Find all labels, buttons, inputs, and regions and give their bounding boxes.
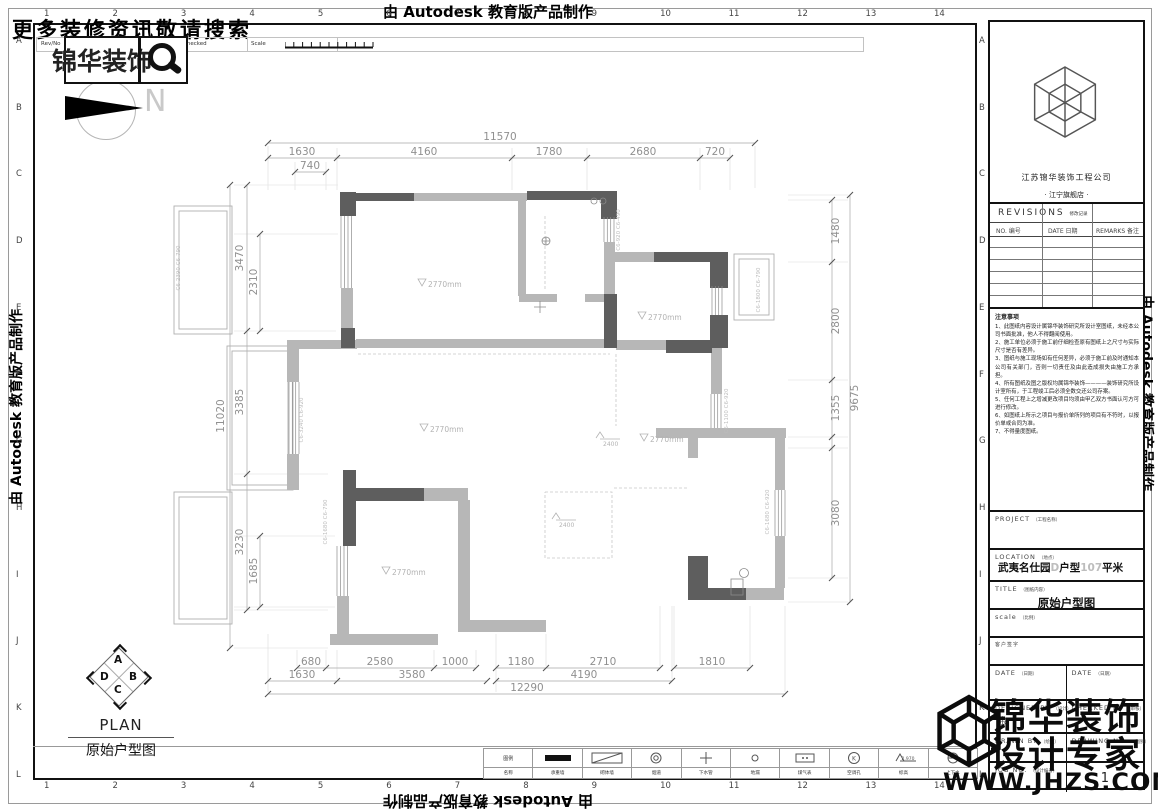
grid-col-top-9: 9 <box>592 9 597 19</box>
grid-col-bottom-9: 9 <box>592 781 597 791</box>
note-4: 4、所有图纸及图之版权均属锦华装饰————装饰研究所设计室所有，于工程竣工后必须… <box>995 380 1139 396</box>
plan-title-en: PLAN <box>68 716 174 734</box>
note-1: 1、此图纸内容设计属锦华装饰研究所设计室图纸，未经本公司书面批准，他人不得翻阅使… <box>995 323 1139 339</box>
grid-row-left-G: G <box>16 436 23 446</box>
grid-col-bottom-3: 3 <box>181 781 186 791</box>
dim-bottom-r1-5: 1810 <box>699 656 726 668</box>
window-label-1: C6-920 C6-490 <box>616 209 622 251</box>
grid-col-bottom-5: 5 <box>318 781 323 791</box>
gas-meter-icon <box>795 752 815 764</box>
dim-bottom-total: 12290 <box>510 682 543 694</box>
project-label-cn: （工程名称） <box>1033 518 1060 523</box>
svg-text:K: K <box>852 756 857 763</box>
dim-bottom-r1-0: 680 <box>301 656 321 668</box>
window-label-0: C6-2390 C6-790 <box>176 245 182 290</box>
grid-col-bottom-2: 2 <box>112 781 117 791</box>
level-mark-1: 2400 <box>559 522 574 529</box>
grid-col-top-4: 4 <box>249 9 254 19</box>
company-name: 江苏锦华装饰工程公司 <box>990 172 1143 183</box>
legend-strip: 图例 名称 承重墙 砌体墙 烟道 下水管 地漏 煤气表 K 空调孔 <box>483 748 978 779</box>
frame-right <box>975 23 977 780</box>
dim-left-mid-1: 3385 <box>234 389 246 416</box>
grid-col-bottom-1: 1 <box>44 781 49 791</box>
autodesk-banner-bottom: 由 Autodesk 教育版产品制作 <box>0 791 976 810</box>
grid-col-top-8: 8 <box>523 9 528 19</box>
client-sign-label: 客户签字 <box>995 641 1019 648</box>
downpipe-icon <box>699 751 713 765</box>
dim-top-seg-3: 2680 <box>630 146 657 158</box>
grid-row-left-I: I <box>16 570 19 580</box>
ac-hole-icon: K <box>847 751 861 765</box>
drawing-title-section: TITLE （图纸内容） 原始户型图 <box>990 580 1143 608</box>
scale-bar <box>285 40 375 49</box>
grid-col-bottom-13: 13 <box>866 781 877 791</box>
window-label-3: C6-3240 C6-920 <box>299 397 305 442</box>
revisions-empty-rows <box>990 235 1143 307</box>
dim-left-mid-0: 3470 <box>234 245 246 272</box>
revisions-title-cn: 修改记录 <box>1070 212 1088 217</box>
grid-row-left-C: C <box>16 169 22 179</box>
grid-row-right-I: I <box>979 570 982 580</box>
watermark-url: WWW.JHZS.COM <box>943 768 1158 796</box>
notes-title: 注意事项 <box>995 313 1139 322</box>
location-label: LOCATION <box>995 553 1036 561</box>
grid-col-bottom-10: 10 <box>660 781 671 791</box>
note-2: 2、施工单位必须于施工前仔细检查原有图纸上之尺寸与实际尺寸是否有差异。 <box>995 339 1139 355</box>
floor-plan: 11570 1630 4160 1780 2680 720 740 11020 … <box>160 108 860 710</box>
grid-row-right-C: C <box>979 169 985 179</box>
masonry-wall-icon <box>591 752 623 764</box>
compass-a: A <box>114 654 122 666</box>
grid-row-left-F: F <box>16 370 21 380</box>
height-mark-2: 2770mm <box>430 425 464 434</box>
grid-row-left-H: H <box>16 503 22 513</box>
legend-header-cell: 图例 名称 <box>484 749 532 778</box>
dim-bottom-r1-1: 2580 <box>367 656 394 668</box>
floor-drain-icon <box>750 753 760 763</box>
grid-col-bottom-11: 11 <box>729 781 740 791</box>
drawing-sheet: 由 Autodesk 教育版产品制作 由 Autodesk 教育版产品制作 由 … <box>0 0 1158 810</box>
dim-bottom-r1-3: 1180 <box>508 656 535 668</box>
dim-bottom-r2-2: 4190 <box>571 669 598 681</box>
date-label-1: DATE <box>995 669 1016 677</box>
grid-col-bottom-4: 4 <box>249 781 254 791</box>
note-6: 6、如图纸上所示之项目与报价单所列的项目有不符时，以报价单或合同为准。 <box>995 412 1139 428</box>
grid-row-left-E: E <box>16 303 21 313</box>
revisions-col-remarks: REMARKS 备注 <box>1096 226 1139 235</box>
revisions-col-no: NO. 编号 <box>996 226 1021 235</box>
jinhua-logo-box: 锦华装饰 <box>64 36 188 84</box>
grid-row-left-L: L <box>16 770 21 780</box>
note-3: 3、图纸与施工现场如有任何差异，必须于施工前及时通知本公司有关部门，否则一切责任… <box>995 355 1139 379</box>
grid-row-right-F: F <box>979 370 984 380</box>
revisions-title-en: REVISIONS <box>998 208 1065 218</box>
plan-title: PLAN 原始户型图 <box>68 716 174 760</box>
dimension-lines <box>227 140 853 697</box>
legend-ac-hole: K 空调孔 <box>829 749 878 778</box>
grid-row-right-J: J <box>979 636 982 646</box>
grid-row-left-J: J <box>16 636 19 646</box>
location-label-cn: （地点） <box>1039 556 1057 561</box>
legend-flue: 烟道 <box>631 749 680 778</box>
date-label-2: DATE <box>1072 669 1093 677</box>
north-label: N <box>144 84 166 119</box>
compass-c: C <box>114 684 122 696</box>
dim-top-seg-4: 720 <box>705 146 725 158</box>
dim-left-total: 11020 <box>215 399 227 432</box>
dim-left-mid-2: 3230 <box>234 529 246 556</box>
legend-floor-drain: 地漏 <box>730 749 779 778</box>
grid-row-left-A: A <box>16 36 22 46</box>
grid-col-bottom-7: 7 <box>455 781 460 791</box>
svg-text:2.970: 2.970 <box>902 756 915 762</box>
height-mark-3: 2770mm <box>650 435 684 444</box>
balconies <box>174 206 774 624</box>
north-arrow-icon <box>65 96 143 120</box>
note-5: 5、任何工程上之增减更改项目均须由甲乙双方书面认可方可进行修改。 <box>995 396 1139 412</box>
compass-b: B <box>129 671 137 683</box>
title-block: 江苏锦华装饰工程公司 · 江宁旗舰店 · REVISIONS 修改记录 NO. … <box>988 20 1145 790</box>
dim-right-total: 9675 <box>849 385 860 412</box>
dim-top-sub: 740 <box>300 160 320 172</box>
window-label-2: C6-1800 C6-790 <box>756 267 762 312</box>
dim-bottom-r1-2: 1000 <box>442 656 469 668</box>
level-mark-0: 2400 <box>603 441 618 448</box>
grid-col-bottom-6: 6 <box>386 781 391 791</box>
dim-left-inner-1: 1685 <box>248 558 260 585</box>
grid-col-bottom-8: 8 <box>523 781 528 791</box>
grid-col-top-6: 6 <box>386 9 391 19</box>
window-label-6: C6-1680 C6-790 <box>323 499 329 544</box>
notes-section: 注意事项 1、此图纸内容设计属锦华装饰研究所设计室图纸，未经本公司书面批准，他人… <box>990 307 1143 510</box>
grid-row-right-B: B <box>979 103 985 113</box>
dim-bottom-r1-4: 2710 <box>590 656 617 668</box>
window-label-5: C6-1680 C6-920 <box>765 489 771 534</box>
grid-col-top-5: 5 <box>318 9 323 19</box>
legend-masonry-wall: 砌体墙 <box>582 749 631 778</box>
dim-left-inner-0: 2310 <box>248 269 260 296</box>
height-mark-1: 2770mm <box>648 313 682 322</box>
flue-legend-icon <box>649 751 663 765</box>
project-label: PROJECT <box>995 515 1030 523</box>
orientation-compass: A B C D <box>88 646 150 708</box>
legend-bearing-wall: 承重墙 <box>532 749 581 778</box>
dim-top-seg-1: 4160 <box>411 146 438 158</box>
window-label-4: C6-1100 C6-920 <box>724 388 730 433</box>
autodesk-banner-left: 由 Autodesk 教育版产品制作 <box>6 309 26 505</box>
location-section: LOCATION （地点） 武夷名仕园D户型107平米 <box>990 548 1143 580</box>
dim-right-seg-0: 1480 <box>830 218 842 245</box>
watermark: 锦华装饰 设计专家 WWW.JHZS.COM <box>935 688 1158 798</box>
level-icon: 2.970 <box>888 751 918 765</box>
project-section: PROJECT （工程名称） <box>990 510 1143 548</box>
grid-row-left-D: D <box>16 236 23 246</box>
grid-col-top-7: 7 <box>455 9 460 19</box>
client-sign-section: 客户签字 <box>990 636 1143 664</box>
legend-downpipe: 下水管 <box>681 749 730 778</box>
dim-right-seg-2: 1355 <box>830 395 842 422</box>
dim-right-seg-1: 2800 <box>830 308 842 335</box>
grid-row-right-A: A <box>979 36 985 46</box>
grid-row-left-B: B <box>16 103 22 113</box>
frame-left <box>33 23 35 780</box>
dim-bottom-r2-1: 3580 <box>399 669 426 681</box>
company-cube-logo <box>1032 64 1098 140</box>
grid-row-right-H: H <box>979 503 985 513</box>
height-mark-0: 2770mm <box>428 280 462 289</box>
grid-row-left-K: K <box>16 703 22 713</box>
dim-top-seg-2: 1780 <box>536 146 563 158</box>
drain-icon-3 <box>740 569 749 578</box>
dim-bottom-r2-0: 1630 <box>289 669 316 681</box>
grid-col-top-2: 2 <box>112 9 117 19</box>
walls-dark <box>340 191 746 600</box>
legend-level: 2.970 标高 <box>878 749 927 778</box>
store-name: · 江宁旗舰店 · <box>990 190 1143 200</box>
scale-section: scale （比例） <box>990 608 1143 636</box>
scale-label-cn: （比例） <box>1020 616 1038 621</box>
grid-col-top-13: 13 <box>866 9 877 19</box>
grid-row-right-G: G <box>979 436 986 446</box>
pipe-icon <box>534 301 546 313</box>
note-7: 7、不得量度图纸。 <box>995 428 1139 436</box>
frame-inner-bottom <box>33 746 977 747</box>
dimension-labels: 11570 1630 4160 1780 2680 720 740 11020 … <box>215 131 860 694</box>
bearing-wall-icon <box>543 753 573 763</box>
dim-top-seg-0: 1630 <box>289 146 316 158</box>
plan-title-cn: 原始户型图 <box>68 740 174 760</box>
grid-col-top-12: 12 <box>797 9 808 19</box>
title-label-cn: （图纸内容） <box>1021 588 1048 593</box>
search-icon <box>141 38 187 82</box>
extension-lines <box>234 146 848 692</box>
height-marks: 2770mm 2770mm 2770mm 2770mm 2770mm 2400 … <box>382 279 684 577</box>
compass-d: D <box>100 671 109 683</box>
grid-col-top-11: 11 <box>729 9 740 19</box>
grid-col-top-1: 1 <box>44 9 49 19</box>
grid-col-top-14: 14 <box>934 9 945 19</box>
revrow-scale-label: Scale <box>251 41 266 47</box>
height-mark-4: 2770mm <box>392 568 426 577</box>
title-label: TITLE <box>995 585 1018 593</box>
grid-row-right-D: D <box>979 236 986 246</box>
grid-col-top-3: 3 <box>181 9 186 19</box>
location-value: 武夷名仕园D户型107平米 <box>998 562 1139 574</box>
dim-top-total: 11570 <box>483 131 516 143</box>
scale-label: scale <box>995 613 1017 621</box>
revisions-col-date: DATE 日期 <box>1048 226 1078 235</box>
jinhua-logo-text: 锦华装饰 <box>66 38 138 82</box>
grid-col-bottom-12: 12 <box>797 781 808 791</box>
legend-gas-meter: 煤气表 <box>779 749 828 778</box>
grid-row-right-E: E <box>979 303 984 313</box>
grid-col-top-10: 10 <box>660 9 671 19</box>
revisions-section: REVISIONS 修改记录 NO. 编号 DATE 日期 REMARKS 备注 <box>990 202 1143 307</box>
dim-right-seg-3: 3080 <box>830 500 842 527</box>
